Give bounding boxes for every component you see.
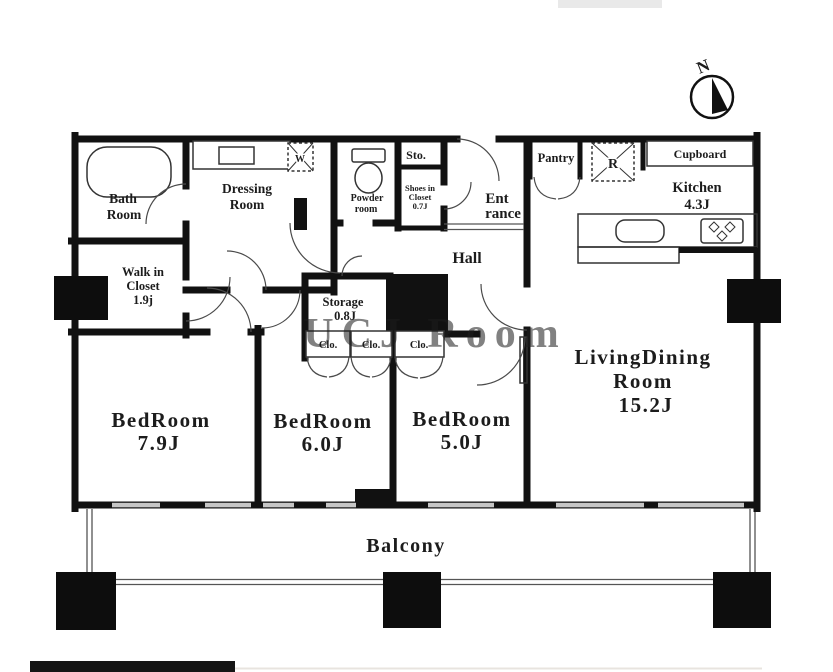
room-label-kitchen-2: 4.3J bbox=[684, 197, 709, 213]
room-label-entrance-1: Ent bbox=[485, 191, 508, 207]
wall-stub bbox=[294, 198, 307, 230]
refrigerator-symbol: R bbox=[608, 157, 619, 172]
room-label-cupboard: Cupboard bbox=[674, 147, 727, 161]
room-label-wic-3: 1.9j bbox=[133, 293, 153, 307]
walkin-closet-door-arc bbox=[186, 277, 230, 321]
watermark: UCJ Room bbox=[303, 311, 566, 357]
closet2-bifold-arcs bbox=[351, 357, 391, 377]
room-label-living-1: LivingDining bbox=[574, 345, 711, 369]
pillar-bottom-left bbox=[56, 572, 116, 630]
room-label-powder-2: room bbox=[355, 204, 378, 215]
north-label: N bbox=[694, 55, 713, 77]
bottom-left-bar bbox=[30, 661, 235, 672]
room-label-wic-2: Closet bbox=[126, 279, 160, 293]
pantry-bifold-arcs bbox=[534, 177, 580, 199]
room-label-dressing-2: Room bbox=[230, 197, 265, 212]
room-label-dressing-1: Dressing bbox=[222, 181, 272, 196]
room-label-pantry: Pantry bbox=[538, 151, 576, 165]
bathtub bbox=[87, 147, 171, 197]
dressing-door-arc bbox=[227, 251, 266, 290]
room-label-bedroom60-1: BedRoom bbox=[273, 409, 372, 433]
room-label-bedroom79-1: BedRoom bbox=[111, 408, 210, 432]
room-label-bedroom50-2: 5.0J bbox=[441, 430, 484, 454]
vanity-counter bbox=[193, 141, 290, 169]
bedroom60-door-arc bbox=[262, 290, 300, 328]
room-label-living-3: 15.2J bbox=[619, 393, 674, 417]
front-door-arc bbox=[457, 139, 499, 181]
north-compass: N bbox=[691, 55, 733, 118]
stove-burners bbox=[709, 222, 735, 241]
room-label-wic-1: Walk in bbox=[122, 265, 164, 279]
room-label-bedroom60-2: 6.0J bbox=[302, 432, 345, 456]
top-scan-artifact bbox=[558, 0, 662, 8]
room-label-powder-1: Powder bbox=[351, 193, 384, 204]
washer-symbol: W bbox=[295, 154, 305, 165]
bedroom79-door-arc bbox=[207, 288, 251, 332]
kitchen-sink bbox=[616, 220, 664, 242]
genkan-step bbox=[444, 224, 524, 230]
closet3-bifold-arcs bbox=[395, 357, 443, 378]
floor-plan-page: N Bath Room Dressing Room Walk in Closet… bbox=[0, 0, 833, 672]
room-label-balcony: Balcony bbox=[366, 535, 445, 557]
pillar-bottom-right bbox=[713, 572, 771, 628]
pillar-right-mid bbox=[727, 279, 781, 323]
room-label-hall: Hall bbox=[452, 250, 482, 267]
room-label-kitchen-1: Kitchen bbox=[672, 180, 721, 196]
floor-plan: N Bath Room Dressing Room Walk in Closet… bbox=[0, 0, 833, 672]
toilet bbox=[352, 149, 385, 193]
room-label-bedroom50-1: BedRoom bbox=[412, 407, 511, 431]
room-label-entrance-2: rance bbox=[485, 206, 521, 222]
pillar-left-mid bbox=[54, 276, 108, 320]
room-label-living-2: Room bbox=[613, 369, 673, 393]
room-label-bedroom79-2: 7.9J bbox=[138, 431, 181, 455]
closet1-bifold-arcs bbox=[307, 357, 349, 377]
room-label-sto: Sto. bbox=[406, 148, 426, 162]
kitchen-counter bbox=[578, 214, 757, 263]
shoes-closet-door-arc bbox=[444, 182, 471, 209]
pillar-bottom-middle bbox=[383, 572, 441, 628]
room-label-storage-1: Storage bbox=[323, 295, 364, 309]
wall-jog bbox=[355, 489, 393, 505]
room-label-bath-2: Room bbox=[107, 207, 142, 222]
room-label-shoes-3: 0.7J bbox=[413, 201, 429, 211]
room-label-bath-1: Bath bbox=[109, 191, 137, 206]
